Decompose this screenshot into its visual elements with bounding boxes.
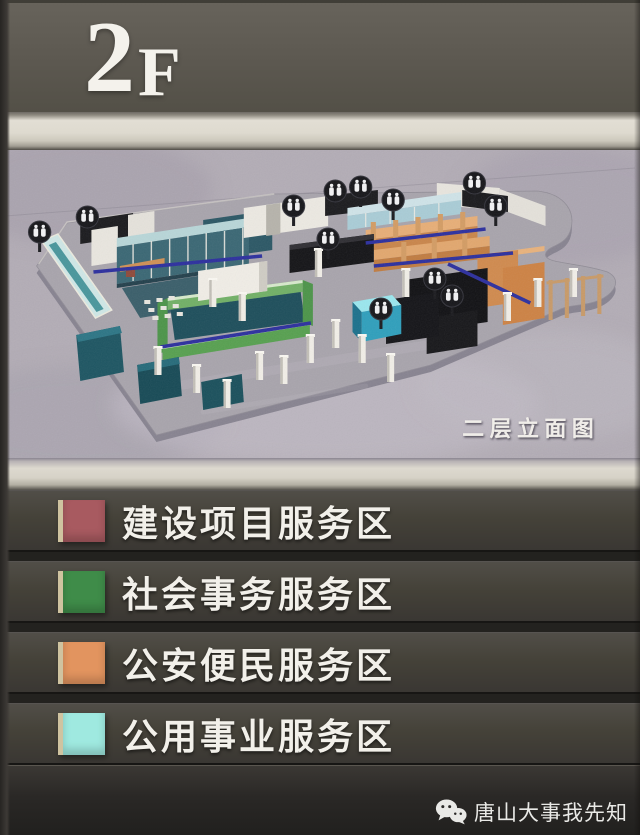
legend-label-construction: 建设项目服务区 bbox=[122, 495, 395, 547]
legend-swatch-construction bbox=[58, 500, 105, 542]
plan-caption: 二层立面图 bbox=[462, 416, 599, 441]
sign-right-frame bbox=[634, 0, 640, 835]
legend-row-social-affairs: 社会事务服务区 bbox=[0, 561, 640, 623]
legend-label-public-utilities: 公用事业服务区 bbox=[122, 708, 395, 760]
legend-label-social-affairs: 社会事务服务区 bbox=[122, 566, 395, 618]
divider-rail-bottom bbox=[0, 458, 640, 490]
floor-directory-sign: 2 F bbox=[0, 0, 640, 835]
floor-number: 2 bbox=[84, 15, 135, 102]
legend-swatch-public-utilities bbox=[58, 713, 105, 755]
legend-swatch-social-affairs bbox=[58, 571, 105, 613]
floor-header: 2 F bbox=[0, 0, 640, 112]
divider-rail-top bbox=[0, 112, 640, 150]
footer-band: 唐山大事我先知 bbox=[0, 765, 640, 835]
floor-suffix: F bbox=[138, 43, 181, 103]
legend-swatch-public-security bbox=[58, 642, 105, 684]
watermark-text: 唐山大事我先知 bbox=[474, 797, 628, 827]
zone-legend: 建设项目服务区 社会事务服务区 公安便民服务区 公用事业服务区 bbox=[0, 490, 640, 765]
legend-row-public-security: 公安便民服务区 bbox=[0, 632, 640, 694]
watermark: 唐山大事我先知 bbox=[435, 797, 628, 827]
legend-label-public-security: 公安便民服务区 bbox=[122, 637, 395, 689]
photo-grain-overlay bbox=[0, 150, 640, 458]
floor-plan-illustration: 二层立面图 bbox=[0, 150, 640, 458]
floor-plan-panel: 二层立面图 bbox=[0, 150, 640, 458]
legend-row-public-utilities: 公用事业服务区 bbox=[0, 703, 640, 765]
sign-left-frame bbox=[0, 0, 10, 835]
legend-row-construction: 建设项目服务区 bbox=[0, 490, 640, 552]
wechat-icon bbox=[435, 798, 467, 825]
